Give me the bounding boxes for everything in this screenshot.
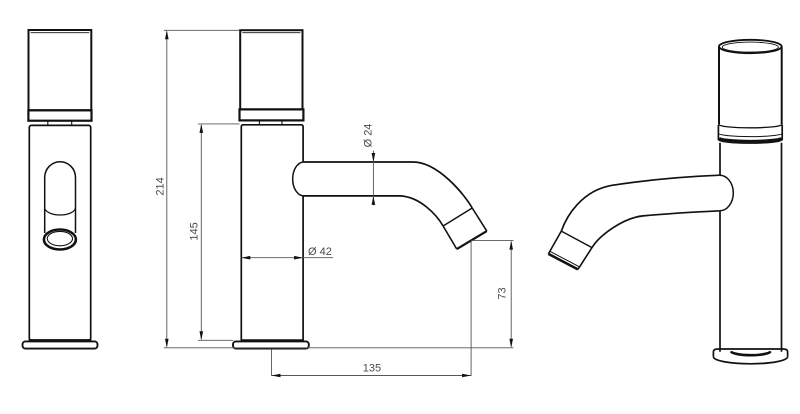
svg-text:214: 214 [154,177,166,195]
svg-text:Ø 24: Ø 24 [363,124,375,148]
svg-text:145: 145 [189,222,201,240]
svg-text:Ø 42: Ø 42 [308,246,332,258]
svg-text:73: 73 [497,287,509,299]
svg-text:135: 135 [363,363,381,375]
